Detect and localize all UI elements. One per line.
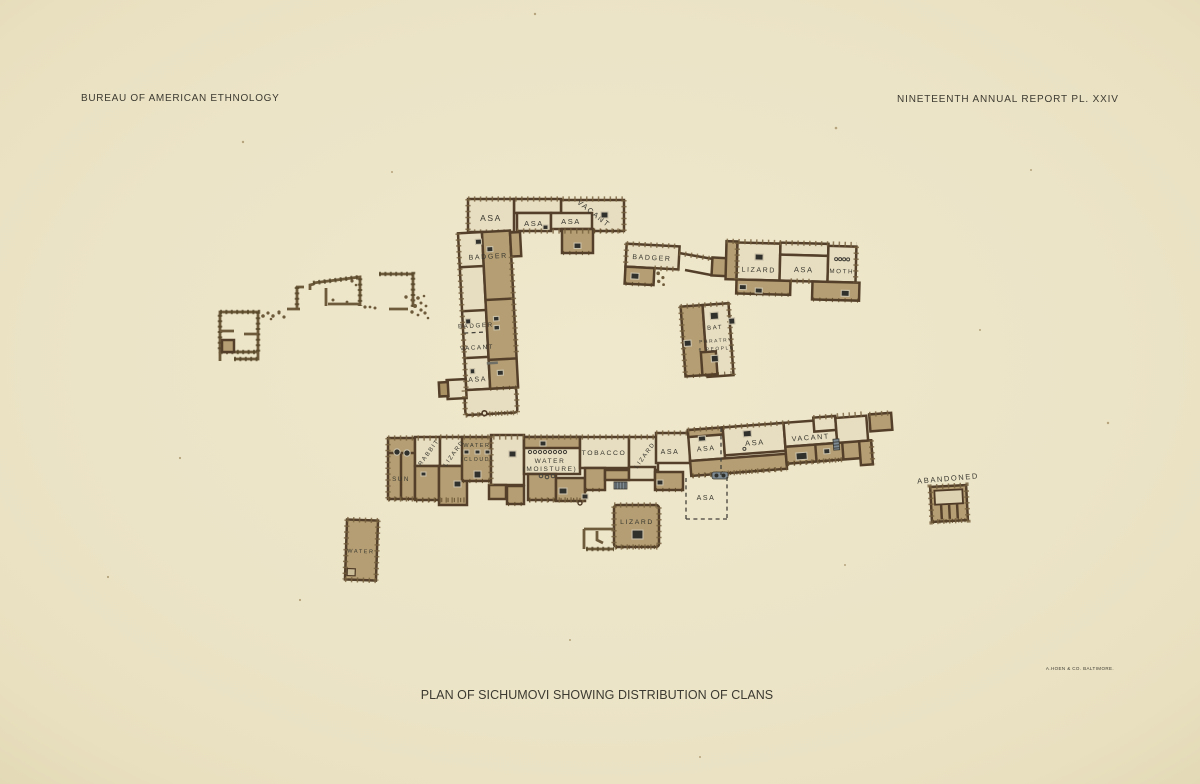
svg-text:(CLOUD): (CLOUD)	[461, 457, 494, 463]
svg-text:BUREAU OF AMERICAN ETHNOLOGY: BUREAU OF AMERICAN ETHNOLOGY	[81, 93, 280, 104]
svg-text:ASA: ASA	[745, 437, 765, 447]
svg-text:NINETEENTH ANNUAL REPORT PL. X: NINETEENTH ANNUAL REPORT PL. XXIV	[897, 94, 1119, 105]
svg-text:WATER: WATER	[347, 549, 374, 556]
svg-text:PLAN OF SICHUMOVI SHOWING DIST: PLAN OF SICHUMOVI SHOWING DISTRIBUTION O…	[421, 688, 773, 702]
svg-text:WATER: WATER	[535, 458, 566, 465]
svg-text:A.HOEN & CO. BALTIMORE.: A.HOEN & CO. BALTIMORE.	[1046, 666, 1114, 671]
svg-text:MOTH: MOTH	[829, 268, 854, 276]
svg-text:WATER: WATER	[463, 443, 490, 449]
svg-text:ASA: ASA	[524, 219, 544, 228]
svg-text:TOBACCO: TOBACCO	[582, 450, 627, 457]
svg-text:ASA: ASA	[697, 445, 716, 453]
svg-text:(MOISTURE): (MOISTURE)	[523, 466, 578, 473]
svg-text:ASA: ASA	[468, 376, 487, 384]
svg-text:LIZARD: LIZARD	[620, 519, 654, 526]
svg-text:ASA: ASA	[661, 449, 680, 456]
svg-text:LIZARD: LIZARD	[741, 267, 776, 275]
svg-text:ASA: ASA	[697, 495, 716, 502]
svg-text:ASA: ASA	[794, 265, 814, 275]
svg-text:BAT: BAT	[707, 325, 723, 332]
svg-text:ASA: ASA	[480, 213, 502, 223]
svg-text:ASA: ASA	[561, 217, 581, 226]
svg-text:SUN: SUN	[392, 476, 410, 483]
